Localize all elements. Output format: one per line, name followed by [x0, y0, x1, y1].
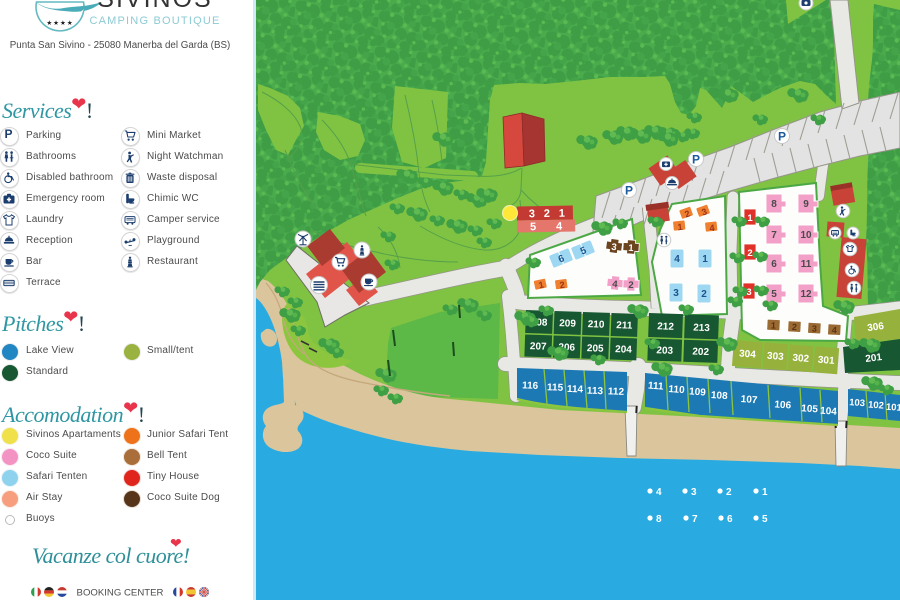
- svg-text:P: P: [692, 153, 700, 167]
- svg-text:213: 213: [693, 323, 710, 335]
- svg-text:4: 4: [832, 325, 838, 335]
- svg-text:112: 112: [608, 386, 625, 398]
- svg-text:109: 109: [689, 386, 707, 398]
- svg-text:5: 5: [530, 221, 536, 233]
- svg-text:2: 2: [628, 280, 634, 291]
- svg-text:3: 3: [812, 323, 818, 333]
- svg-text:115: 115: [547, 382, 564, 394]
- svg-text:303: 303: [767, 351, 785, 363]
- svg-text:4: 4: [709, 223, 715, 233]
- svg-text:211: 211: [616, 320, 633, 332]
- svg-text:111: 111: [648, 381, 665, 393]
- svg-text:3: 3: [529, 208, 535, 220]
- svg-text:8: 8: [656, 514, 662, 525]
- svg-text:8: 8: [771, 199, 777, 210]
- svg-text:108: 108: [711, 390, 729, 402]
- svg-text:1: 1: [771, 320, 777, 330]
- svg-text:101: 101: [886, 402, 900, 414]
- svg-text:1: 1: [762, 487, 768, 498]
- svg-text:212: 212: [657, 321, 674, 333]
- svg-text:5: 5: [762, 514, 768, 525]
- svg-text:104: 104: [820, 406, 838, 418]
- svg-text:1: 1: [702, 254, 708, 265]
- svg-text:113: 113: [587, 386, 604, 398]
- svg-text:12: 12: [800, 289, 812, 300]
- svg-text:110: 110: [668, 384, 685, 396]
- svg-text:4: 4: [556, 221, 563, 233]
- svg-text:106: 106: [774, 399, 792, 411]
- svg-text:202: 202: [692, 347, 709, 359]
- svg-text:P: P: [625, 184, 633, 198]
- svg-text:7: 7: [771, 230, 777, 241]
- svg-text:3: 3: [673, 288, 679, 299]
- svg-text:P: P: [778, 130, 786, 144]
- svg-text:207: 207: [530, 341, 547, 353]
- svg-text:5: 5: [771, 289, 777, 300]
- svg-text:★★★★: ★★★★: [46, 19, 73, 27]
- svg-text:302: 302: [792, 353, 810, 365]
- svg-text:203: 203: [656, 345, 673, 357]
- svg-text:1: 1: [559, 208, 565, 220]
- svg-text:2: 2: [701, 289, 707, 300]
- svg-text:4: 4: [656, 487, 662, 498]
- svg-text:209: 209: [559, 318, 576, 330]
- svg-text:10: 10: [800, 230, 812, 241]
- svg-text:107: 107: [740, 394, 758, 406]
- svg-text:9: 9: [803, 199, 809, 210]
- svg-text:4: 4: [674, 254, 680, 265]
- svg-text:301: 301: [817, 355, 835, 367]
- svg-text:1: 1: [677, 222, 683, 232]
- svg-text:201: 201: [865, 352, 883, 365]
- svg-text:204: 204: [615, 344, 632, 356]
- svg-text:1: 1: [747, 213, 753, 224]
- svg-text:304: 304: [739, 348, 757, 360]
- svg-text:210: 210: [587, 319, 604, 331]
- svg-text:102: 102: [868, 400, 885, 412]
- svg-text:2: 2: [747, 248, 752, 259]
- svg-text:105: 105: [801, 403, 819, 415]
- svg-text:205: 205: [587, 343, 604, 355]
- svg-text:7: 7: [692, 514, 698, 525]
- svg-text:BOOKING CENTER: BOOKING CENTER: [77, 587, 164, 598]
- svg-text:116: 116: [522, 380, 539, 392]
- svg-text:103: 103: [849, 397, 866, 409]
- svg-text:2: 2: [726, 487, 732, 498]
- svg-text:6: 6: [771, 259, 777, 270]
- svg-text:3: 3: [691, 487, 697, 498]
- svg-text:2: 2: [544, 208, 550, 220]
- svg-text:6: 6: [727, 514, 733, 525]
- svg-text:2: 2: [792, 322, 798, 332]
- svg-text:11: 11: [801, 259, 812, 270]
- svg-text:114: 114: [567, 384, 584, 396]
